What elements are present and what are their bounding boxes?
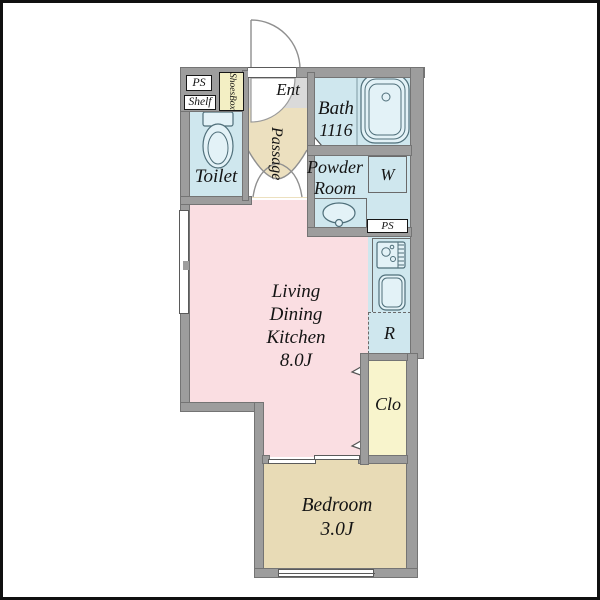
floor-plan: PS Shelf Shoes Box W PS Ent Passage Toil… — [0, 0, 600, 600]
window-left-mullion — [183, 261, 189, 270]
toilet-label-text: Toilet — [195, 166, 238, 188]
washbasin-icon — [323, 203, 355, 227]
bedroom-size-text: 3.0J — [320, 518, 353, 542]
washer-label: W — [380, 165, 394, 185]
toilet-label: Toilet — [186, 165, 246, 189]
wall-right-upper — [410, 67, 424, 359]
stove-icon — [377, 242, 405, 268]
ldk-label-3: Kitchen — [266, 326, 325, 349]
closet-label: Clo — [364, 392, 412, 416]
toilet-icon — [203, 112, 233, 168]
bath-label-text: Bath — [318, 98, 354, 120]
wall-bedroom-left — [254, 402, 264, 578]
refrigerator-label-text: R — [384, 323, 395, 344]
wall-right-lower — [406, 353, 418, 578]
sliding-door-panel — [268, 459, 316, 464]
bedroom-window-rail — [279, 573, 375, 574]
passage-label-text: Passage — [267, 127, 285, 180]
entrance-doorway — [248, 67, 296, 78]
entrance-door-arc — [251, 20, 300, 69]
pipe-space-kitchen-box: PS — [367, 219, 408, 233]
wall-top-right — [296, 67, 425, 78]
pipe-space-kitchen-label: PS — [381, 220, 393, 233]
refrigerator-label: R — [368, 312, 411, 354]
bedroom-label: Bedroom 3.0J — [277, 492, 397, 544]
shelf-label: Shelf — [189, 96, 212, 109]
ldk-label: Living Dining Kitchen 8.0J — [234, 278, 358, 374]
ldk-label-1: Living — [272, 280, 321, 303]
shelf-box: Shelf — [184, 95, 216, 110]
pipe-space-box: PS — [186, 75, 212, 91]
washer-space: W — [368, 156, 407, 193]
bedroom-window — [278, 569, 374, 577]
bath-size-text: 1116 — [319, 120, 352, 141]
window-left — [179, 210, 189, 314]
entrance-label-text: Ent — [276, 80, 300, 100]
powder-room-label: Powder Room — [303, 155, 367, 201]
passage-label: Passage — [261, 112, 291, 196]
bath-label: Bath 1116 — [308, 95, 364, 143]
powder-room-label-1: Powder — [307, 157, 363, 178]
closet-label-text: Clo — [375, 394, 401, 415]
ldk-size-text: 8.0J — [280, 349, 312, 372]
ldk-label-2: Dining — [270, 303, 323, 326]
shoes-box-label-2: Box — [226, 95, 237, 110]
shoes-box-label-1: Shoes — [226, 73, 237, 95]
kitchen-sink-icon — [379, 275, 405, 310]
entrance-label: Ent — [264, 78, 312, 102]
bedroom-label-text: Bedroom — [302, 494, 373, 518]
sliding-door-panel — [314, 455, 360, 460]
pipe-space-label: PS — [192, 76, 205, 90]
powder-room-label-2: Room — [314, 178, 356, 199]
shoes-box: Shoes Box — [219, 72, 244, 111]
wall-ldk-step — [180, 402, 264, 412]
bathtub-icon — [361, 75, 409, 143]
